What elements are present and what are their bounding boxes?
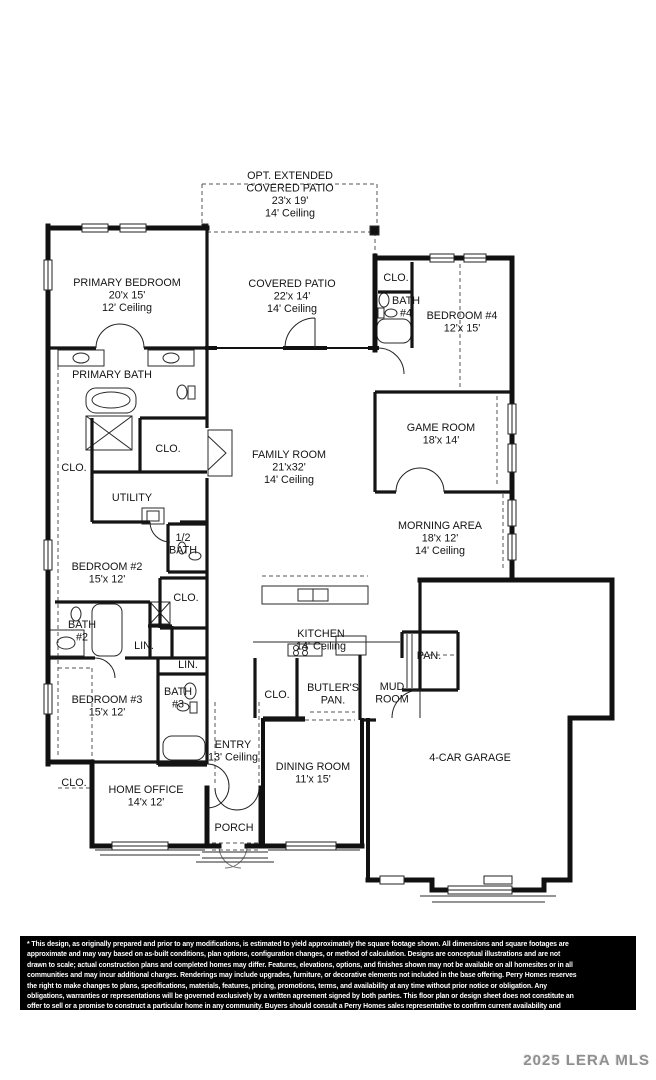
room-label-morning-area: MORNING AREA18'x 12'14' Ceiling [398, 520, 483, 557]
disclaimer-band: * This design, as originally prepared an… [20, 936, 636, 1010]
room-label-bedroom-2: BEDROOM #215'x 12' [72, 561, 143, 586]
room-label-entry: ENTRY13' Ceiling [208, 739, 258, 764]
room-label-half-bath: 1/2BATH [169, 532, 197, 557]
room-label-dining-room: DINING ROOM11'x 15' [276, 761, 350, 786]
room-label-pan: PAN. [417, 650, 441, 662]
room-label-bath-4: BATH#4 [392, 295, 420, 320]
room-label-kitchen: KITCHEN14' Ceiling [296, 628, 346, 653]
room-label-game-room: GAME ROOM18'x 14' [407, 422, 475, 447]
room-label-bedroom-4: BEDROOM #412'x 15' [427, 310, 498, 335]
room-label-clo-bath4: CLO. [383, 272, 408, 284]
room-label-butlers-pan: BUTLER'SPAN. [307, 682, 359, 707]
room-label-lin-bath2: LIN. [134, 640, 154, 652]
room-label-lin-bath3: LIN. [178, 659, 198, 671]
mls-watermark: 2025 LERA MLS [523, 1052, 650, 1069]
disclaimer-line-5: the right to make changes to plans, spec… [27, 982, 629, 992]
disclaimer-line-3: drawn to scale; actual construction plan… [27, 961, 629, 971]
room-label-home-office: HOME OFFICE14'x 12' [109, 784, 184, 809]
room-label-covered-patio: COVERED PATIO22'x 14'14' Ceiling [248, 278, 335, 315]
room-label-clo-bedroom2: CLO. [173, 592, 198, 604]
disclaimer-line-1: * This design, as originally prepared an… [27, 940, 629, 950]
disclaimer-line-4: communities and may incur additional cha… [27, 971, 629, 981]
room-label-primary-bedroom: PRIMARY BEDROOM20'x 15'12' Ceiling [73, 277, 181, 314]
disclaimer-line-6: obligations, warranties or representatio… [27, 992, 629, 1002]
room-label-clo-primary: CLO. [155, 443, 180, 455]
room-label-garage: 4-CAR GARAGE [429, 752, 511, 764]
room-label-porch: PORCH [215, 822, 254, 834]
room-label-clo-bedroom3: CLO. [61, 777, 86, 789]
floor-plan-page: OPT. EXTENDEDCOVERED PATIO23'x 19'14' Ce… [0, 0, 656, 1080]
room-label-clo-left: CLO. [61, 462, 86, 474]
room-label-primary-bath: PRIMARY BATH [72, 369, 152, 381]
room-label-utility: UTILITY [112, 492, 152, 504]
room-label-bedroom-3: BEDROOM #315'x 12' [72, 694, 143, 719]
room-label-clo-butler: CLO. [264, 689, 289, 701]
room-label-family-room: FAMILY ROOM21'x32'14' Ceiling [252, 449, 326, 486]
disclaimer-line-7: offer to sell or a promise to construct … [27, 1002, 629, 1010]
disclaimer-line-2: approximate and may vary based on as-bui… [27, 950, 629, 960]
room-label-mud-room: MUDROOM [375, 681, 409, 706]
room-labels: OPT. EXTENDEDCOVERED PATIO23'x 19'14' Ce… [61, 170, 510, 834]
room-label-opt-extended-covered-patio: OPT. EXTENDEDCOVERED PATIO23'x 19'14' Ce… [246, 170, 333, 220]
floor-plan-drawing: OPT. EXTENDEDCOVERED PATIO23'x 19'14' Ce… [0, 0, 656, 930]
